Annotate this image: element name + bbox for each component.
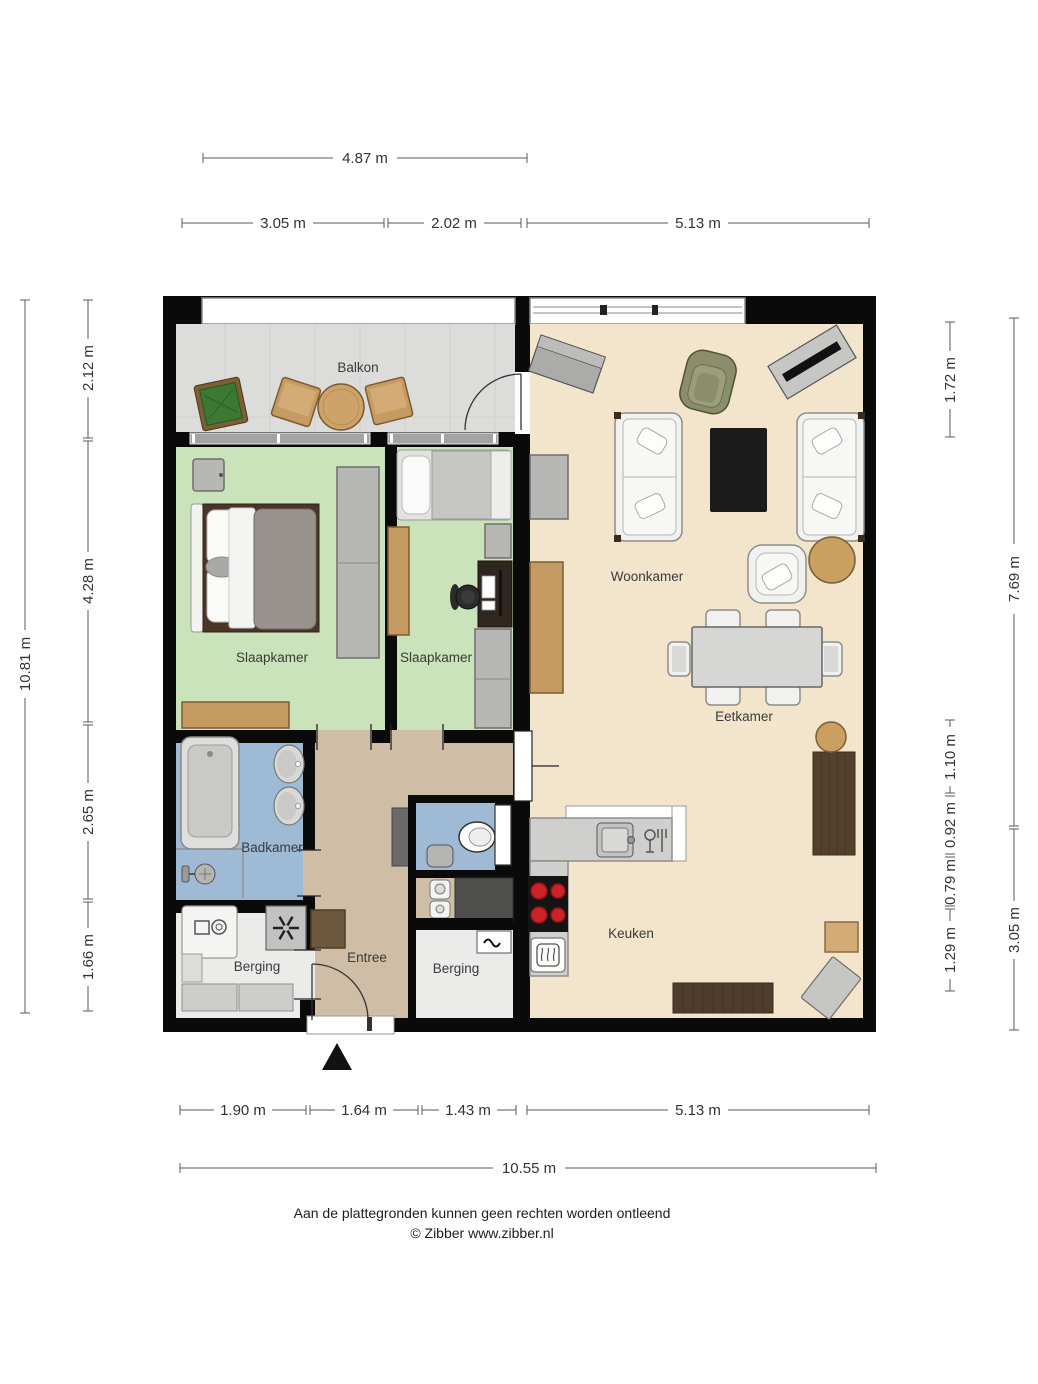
- dim-top-2: 2.02 m: [431, 215, 477, 232]
- shaft-unit-icon: [455, 878, 513, 922]
- wardrobe-icon: [337, 467, 379, 658]
- nightstand-icon: [193, 459, 224, 491]
- room-label-entree: Entree: [347, 950, 387, 965]
- dim-left-total: 10.81 m: [17, 637, 34, 691]
- bathroom-door-opening: [303, 850, 315, 896]
- kitchen-rug-icon: [673, 983, 773, 1013]
- dim-top-3: 5.13 m: [675, 215, 721, 232]
- dim-top-upper: 4.87 m: [342, 150, 388, 167]
- dim-right-outer-2: 3.05 m: [1006, 907, 1023, 953]
- bench-icon: [825, 922, 858, 952]
- balcony-chair-icon: [365, 377, 413, 425]
- coffee-table-icon: [710, 428, 767, 512]
- room-label-slaapkamer-1: Slaapkamer: [236, 650, 309, 665]
- bathtub-icon: [181, 737, 239, 849]
- bathroom-sink-icon: [274, 787, 304, 825]
- stool-icon: [816, 722, 846, 752]
- dim-right-2: 1.10 m: [942, 734, 959, 780]
- oven-icon: [531, 938, 565, 972]
- dim-right-5: 1.29 m: [942, 927, 959, 973]
- floor-plan: 4.87 m 3.05 m 2.02 m 5.13 m 10.81 m 2.12…: [0, 0, 1038, 1384]
- wc-door-leaf: [495, 805, 511, 865]
- balcony-railing: [202, 298, 515, 324]
- balcony-table-icon: [318, 384, 364, 430]
- kitchen-sink-icon: [597, 823, 635, 857]
- washing-machine-icon: [182, 906, 237, 958]
- footer-disclaimer: Aan de plattegronden kunnen geen rechten…: [294, 1205, 671, 1221]
- armchair-icon: [748, 545, 806, 603]
- dim-right-outer-1: 7.69 m: [1006, 556, 1023, 602]
- dim-bottom-2: 1.64 m: [341, 1102, 387, 1119]
- mechanical-vent-icon: [477, 931, 511, 953]
- room-label-eetkamer: Eetkamer: [715, 709, 773, 724]
- plant-icon: [194, 377, 249, 432]
- footer: Aan de plattegronden kunnen geen rechten…: [294, 1205, 671, 1241]
- berging2-wall-left: [408, 878, 416, 1018]
- balcony-door-opening: [515, 372, 530, 434]
- living-door-leaf: [514, 731, 532, 801]
- dim-left-3: 2.65 m: [80, 789, 97, 835]
- entrance-door-sill: [307, 1016, 394, 1034]
- room-label-woonkamer: Woonkamer: [611, 569, 684, 584]
- entrance-marker-icon: [322, 1043, 352, 1070]
- dining-table-icon: [692, 627, 822, 687]
- wardrobe-icon: [388, 527, 409, 635]
- cabinet-icon: [485, 524, 511, 558]
- room-label-keuken: Keuken: [608, 926, 654, 941]
- double-bed-icon: [191, 504, 319, 632]
- doormat-icon: [311, 910, 345, 948]
- desk-icon: [478, 561, 512, 627]
- stove-icon: [528, 876, 568, 932]
- room-label-badkamer: Badkamer: [241, 840, 303, 855]
- dim-bottom-1: 1.90 m: [220, 1102, 266, 1119]
- wall-cabinet-icon: [530, 455, 568, 519]
- footer-copyright: © Zibber www.zibber.nl: [410, 1225, 553, 1241]
- boiler-fixtures-icon: [430, 880, 450, 918]
- tall-cabinet-icon: [530, 562, 563, 693]
- dim-right-1: 1.72 m: [942, 357, 959, 403]
- dresser-icon: [182, 702, 289, 728]
- berging2-wall: [408, 918, 513, 930]
- cabinet-icon: [475, 629, 511, 728]
- sofa-icon: [797, 412, 865, 542]
- ventilation-unit-icon: [266, 906, 306, 950]
- office-chair-icon: [450, 584, 480, 610]
- berging1-door-opening: [300, 950, 315, 1000]
- sofa-icon: [614, 412, 682, 542]
- room-label-berging-1: Berging: [234, 959, 281, 974]
- dim-bottom-3: 1.43 m: [445, 1102, 491, 1119]
- round-table-icon: [809, 537, 855, 583]
- single-bed-icon: [397, 450, 511, 520]
- dim-right-3: 0.92 m: [942, 802, 959, 848]
- room-label-berging-2: Berging: [433, 961, 480, 976]
- dim-left-4: 1.66 m: [80, 934, 97, 980]
- bookcase-icon: [813, 752, 855, 855]
- room-label-balkon: Balkon: [337, 360, 378, 375]
- bedroom-windows: [190, 433, 498, 444]
- dim-bottom-total: 10.55 m: [502, 1160, 556, 1177]
- dim-left-2: 4.28 m: [80, 558, 97, 604]
- dim-bottom-4: 5.13 m: [675, 1102, 721, 1119]
- dim-right-4: 0.79 m: [942, 859, 959, 905]
- floor-plan-page: 4.87 m 3.05 m 2.02 m 5.13 m 10.81 m 2.12…: [0, 0, 1038, 1384]
- dim-left-1: 2.12 m: [80, 345, 97, 391]
- building: [163, 296, 876, 1034]
- dim-top-1: 3.05 m: [260, 215, 306, 232]
- living-window: [530, 298, 745, 324]
- room-label-slaapkamer-2: Slaapkamer: [400, 650, 473, 665]
- bathroom-sink-icon: [274, 745, 304, 783]
